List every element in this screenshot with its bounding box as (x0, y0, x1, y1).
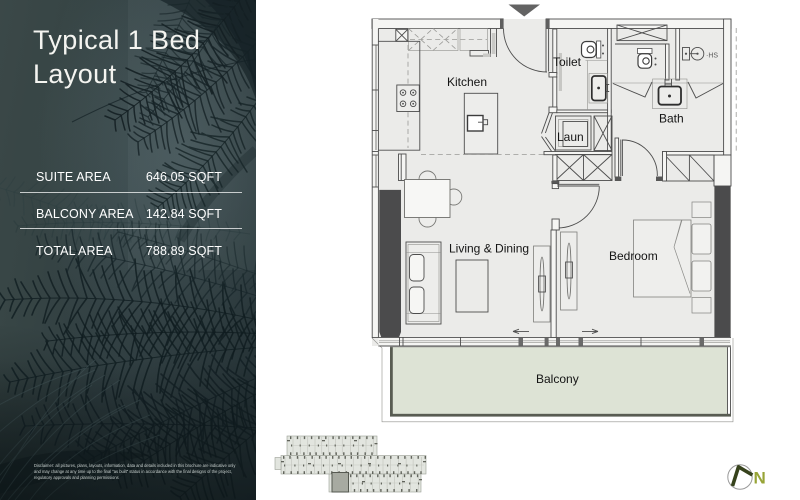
svg-text:N: N (754, 469, 766, 488)
svg-text:Toilet: Toilet (553, 55, 582, 69)
svg-text:Laun: Laun (557, 130, 584, 144)
svg-text:·HS: ·HS (706, 53, 718, 60)
svg-text:Balcony: Balcony (536, 372, 579, 386)
svg-text:Kitchen: Kitchen (447, 75, 487, 89)
svg-text:Living & Dining: Living & Dining (449, 242, 529, 256)
svg-text:Bath: Bath (659, 112, 684, 126)
svg-text:Bedroom: Bedroom (609, 249, 658, 263)
